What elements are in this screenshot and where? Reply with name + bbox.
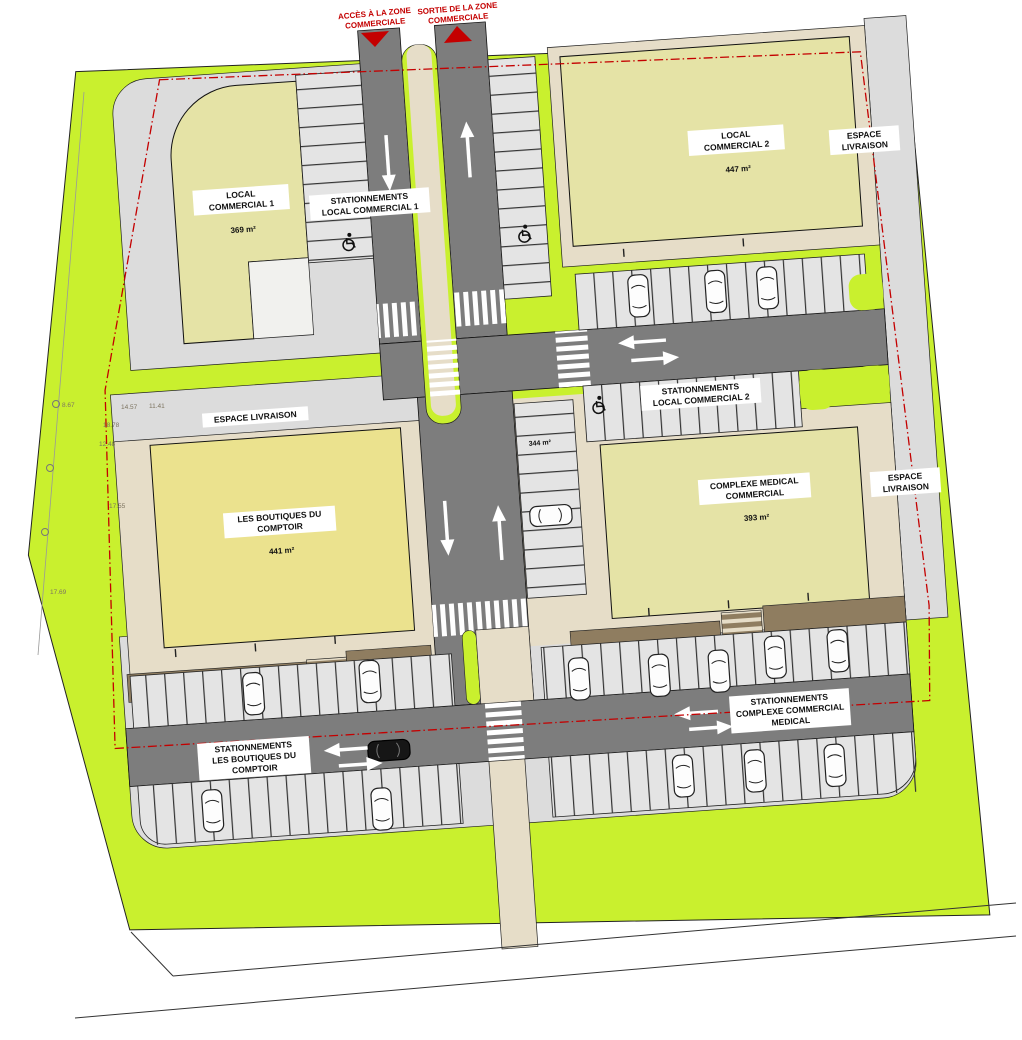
car-icon [201,789,224,832]
car-icon [744,749,767,792]
lc1-area: 369 m² [230,224,256,235]
crosswalk-exit [453,289,506,326]
car-icon [529,504,572,527]
dimension-text: 18.78 [103,422,120,429]
dimension-text: 17.69 [50,589,67,596]
label-espace-livraison-right: ESPACE LIVRAISON [870,467,942,497]
car-icon [367,739,410,762]
dimension-text: 17.55 [109,503,126,510]
car-icon [568,657,591,700]
lc2-area: 447 m² [725,164,751,175]
site-plan-page: LOCAL COMMERCIAL 1 369 m² STATIONNEMENTS… [0,0,1022,1040]
car-icon [627,274,650,317]
south-walkway-upper [476,626,534,704]
green-corner-2 [848,273,884,311]
label-stationnements-boutiques: STATIONNEMENTS LES BOUTIQUES DU COMPTOIR [197,736,311,781]
boutiques-area: 441 m² [269,545,295,556]
car-icon [704,270,727,313]
lc2-name-line1: LOCAL [721,129,751,141]
car-icon [371,787,394,830]
medical-area: 393 m² [744,512,770,523]
car-icon [359,660,382,703]
dimension-text: 11.41 [149,403,165,410]
car-icon [708,650,731,693]
dimension-text: 12.48 [99,441,116,448]
green-corner-1 [798,369,835,411]
lc1-notch [248,258,313,339]
access-annotation: ACCÈS À LA ZONE COMMERCIALE [338,6,413,31]
car-icon [756,266,779,309]
building-les-boutiques [150,428,415,648]
parking-row-lc1-stripes [296,71,374,263]
car-icon [764,636,787,679]
crosswalk-south [485,701,525,761]
exit-annotation: SORTIE DE LA ZONE COMMERCIALE [417,0,499,26]
crosswalk-ew-2 [555,330,591,388]
car-icon [672,754,695,797]
car-icon [827,629,850,672]
dimension-text: 8.67 [62,402,75,409]
car-icon [242,672,265,715]
site-plan-drawing: LOCAL COMMERCIAL 1 369 m² STATIONNEMENTS… [0,0,1022,1040]
lc1-name-line1: LOCAL [226,188,256,200]
car-icon [648,654,671,697]
car-icon [824,744,847,787]
green-corner-3 [854,365,890,403]
label-espace-livraison-top: ESPACE LIVRAISON [829,125,901,155]
crosswalk-ew-1 [426,339,460,397]
crosswalk-entry [377,301,421,338]
dimension-text: 14.57 [121,404,138,411]
building-complexe-medical [600,427,870,619]
